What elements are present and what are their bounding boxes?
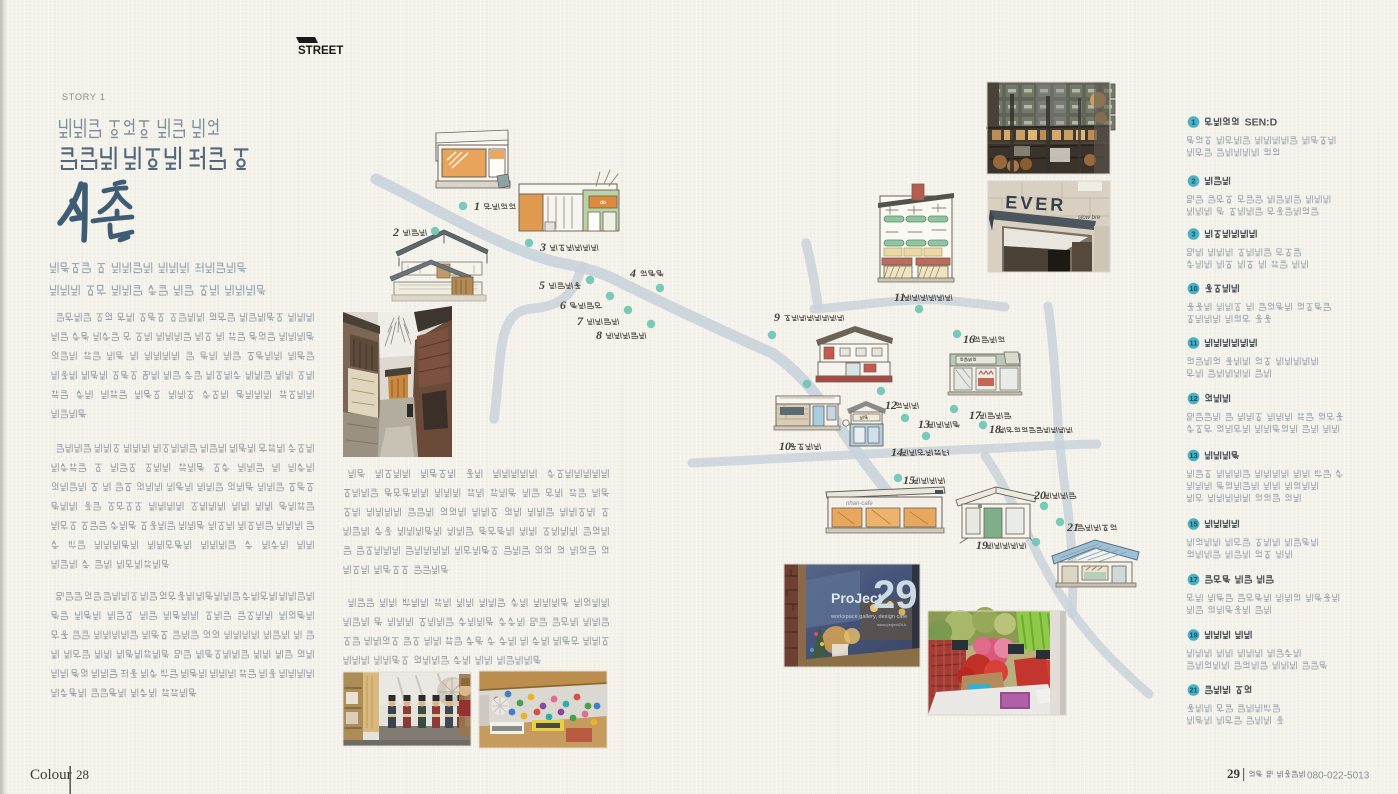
svg-text:15: 15 — [1189, 520, 1197, 529]
svg-text:8: 8 — [596, 328, 602, 342]
svg-text:1: 1 — [474, 199, 480, 213]
svg-text:2: 2 — [392, 225, 399, 239]
svg-text:21: 21 — [1066, 520, 1079, 534]
svg-text:14: 14 — [891, 445, 903, 459]
svg-text:5: 5 — [539, 278, 545, 292]
svg-text:9: 9 — [774, 310, 780, 324]
svg-text:17: 17 — [1189, 575, 1197, 584]
svg-text:3: 3 — [1191, 230, 1195, 239]
svg-text:SEN:D: SEN:D — [1245, 117, 1278, 129]
svg-text:13: 13 — [918, 417, 930, 431]
svg-text:STREET: STREET — [298, 45, 343, 57]
svg-text:080-022-5013: 080-022-5013 — [1307, 771, 1370, 782]
svg-text:EVER: EVER — [1005, 192, 1067, 215]
svg-text:20: 20 — [1033, 488, 1046, 502]
svg-text:6: 6 — [560, 298, 566, 312]
svg-text:nhan-cafe: nhan-cafe — [846, 501, 873, 507]
svg-text:11: 11 — [1190, 339, 1198, 348]
svg-text:STORY 1: STORY 1 — [62, 92, 106, 102]
svg-text:29: 29 — [1227, 766, 1241, 781]
svg-text:7: 7 — [577, 314, 584, 328]
svg-text:1: 1 — [1191, 118, 1195, 127]
svg-text:www.project29.k: www.project29.k — [877, 622, 906, 627]
svg-text:do: do — [600, 200, 606, 206]
svg-text:29: 29 — [873, 573, 918, 617]
svg-text:10: 10 — [1189, 284, 1197, 293]
svg-text:4: 4 — [629, 266, 636, 280]
svg-text:19: 19 — [976, 538, 988, 552]
svg-text:12: 12 — [1189, 394, 1197, 403]
svg-text:11: 11 — [894, 290, 905, 304]
svg-text:workspace gallery, design cafe: workspace gallery, design cafe — [830, 614, 907, 620]
svg-text:19: 19 — [1189, 631, 1197, 640]
svg-text:3: 3 — [539, 240, 546, 254]
svg-text:21: 21 — [1189, 686, 1197, 695]
svg-text:Colour: Colour — [30, 767, 72, 783]
svg-text:28: 28 — [76, 767, 89, 782]
svg-text:16: 16 — [963, 332, 975, 346]
svg-text:10: 10 — [779, 439, 791, 453]
svg-text:15: 15 — [903, 473, 915, 487]
svg-text:12: 12 — [885, 398, 897, 412]
svg-text:13: 13 — [1189, 451, 1197, 460]
svg-text:2: 2 — [1191, 177, 1195, 186]
